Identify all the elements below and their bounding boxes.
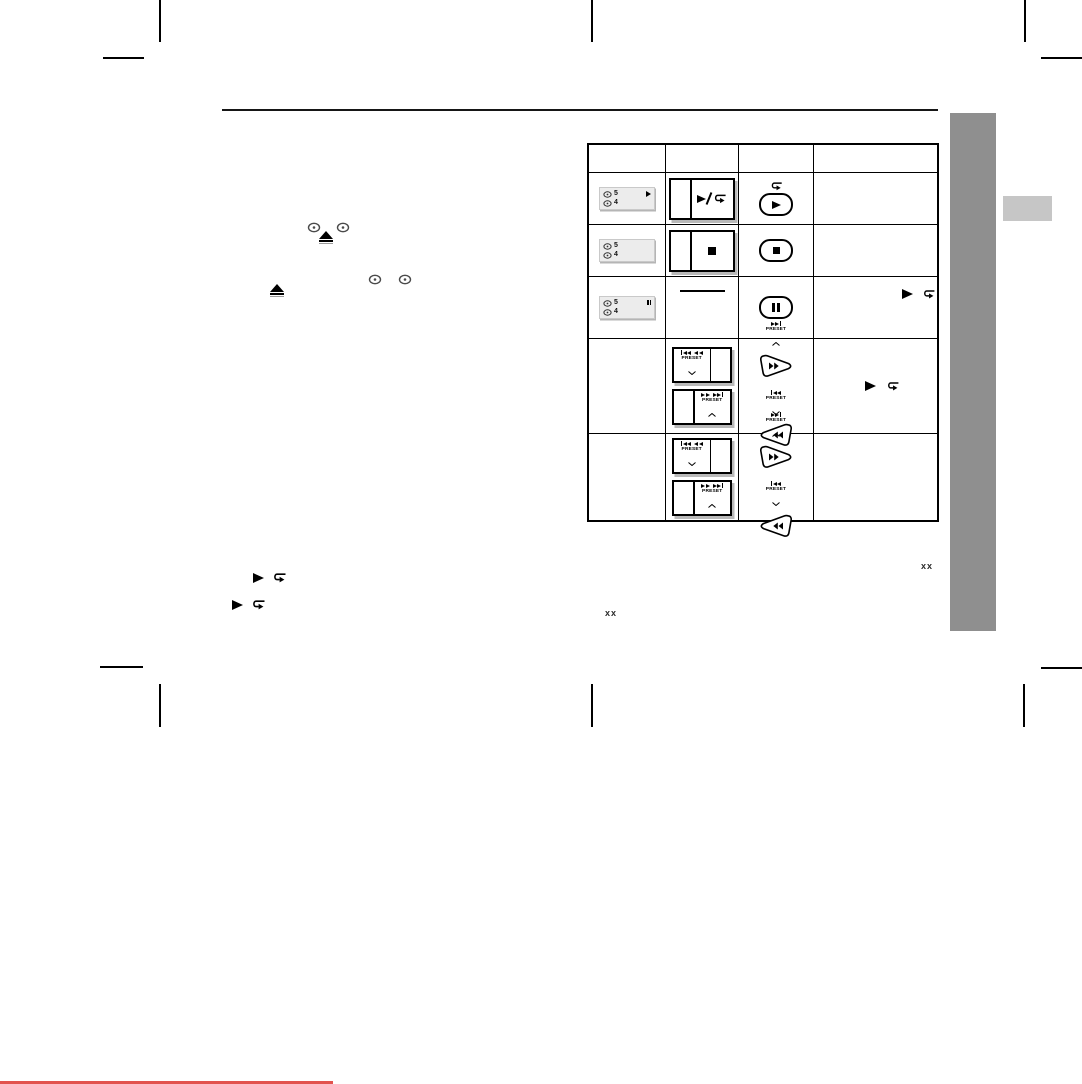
cell-note-stop xyxy=(814,225,937,277)
cell-remote-stop xyxy=(739,225,814,277)
cell-note-pause xyxy=(814,277,937,339)
crop-mark-bottom-right-horizontal xyxy=(1041,667,1082,669)
cell-remote-play xyxy=(739,173,814,225)
play-icon xyxy=(772,201,781,209)
repeat-icon xyxy=(712,193,727,204)
cell-remote-search: PRESET PRESET xyxy=(739,434,814,520)
chevron-down-icon xyxy=(772,493,780,511)
remote-pause-button xyxy=(759,296,793,319)
crop-mark-bottom-center-vertical xyxy=(591,684,593,727)
fast-forward-icon xyxy=(701,484,710,488)
crop-mark-top-center-vertical xyxy=(591,0,593,42)
cell-note-play xyxy=(814,173,937,225)
remote-rewind-pick-button xyxy=(758,513,794,545)
play-repeat-note xyxy=(865,381,900,391)
skip-forward-icon xyxy=(771,321,782,326)
no-button-dash xyxy=(680,290,725,292)
remote-fast-forward-pick-button xyxy=(758,444,794,476)
preset-up-label: PRESET xyxy=(766,412,786,442)
button-blank-half xyxy=(711,440,730,472)
skip-forward-icon xyxy=(771,412,782,417)
fast-forward-preset-up-glyphs: PRESET xyxy=(695,482,731,514)
repeat-icon xyxy=(250,599,266,610)
play-repeat-button xyxy=(669,178,735,220)
cell-unit-stop xyxy=(666,225,739,277)
play-icon xyxy=(646,191,651,197)
button-blank-half xyxy=(671,232,690,270)
button-blank-half xyxy=(674,482,693,514)
disc-icon xyxy=(603,303,612,321)
button-blank-half xyxy=(671,180,690,218)
disc-icon xyxy=(368,272,382,290)
chevron-down-icon xyxy=(688,362,696,380)
chevron-up-icon xyxy=(772,424,780,442)
lcd-line-disc4: 4 xyxy=(603,199,651,207)
crop-mark-bottom-left-horizontal xyxy=(100,666,143,668)
remote-play-group xyxy=(759,181,793,216)
play-icon xyxy=(902,289,913,299)
play-icon xyxy=(865,381,876,391)
crop-mark-bottom-right-vertical xyxy=(1023,684,1025,727)
table-header-notes xyxy=(814,145,937,173)
lcd-display-playing: 5 4 xyxy=(599,187,655,211)
table-header-display xyxy=(589,145,666,173)
repeat-icon xyxy=(769,181,783,191)
crop-mark-right-horizontal xyxy=(1041,57,1082,59)
skip-back-preset-down-button: PRESET xyxy=(672,438,732,474)
remote-search-buttons: PRESET PRESET xyxy=(758,409,794,545)
skip-back-preset-down-button: PRESET xyxy=(672,347,732,383)
chevron-up-icon xyxy=(708,495,716,513)
pause-icon xyxy=(647,300,651,305)
disc-icon xyxy=(603,194,612,212)
skip-back-preset-down-glyphs: PRESET xyxy=(674,440,710,472)
cell-display-play: 5 4 xyxy=(589,173,666,225)
stop-button xyxy=(669,230,735,272)
disc-icon xyxy=(336,220,350,238)
stop-glyph xyxy=(692,232,734,270)
chapter-sidebar-tab xyxy=(1003,196,1052,221)
cell-note-skip xyxy=(814,339,937,434)
fast-forward-preset-up-glyphs: PRESET xyxy=(695,391,731,423)
crop-mark-top-right-vertical xyxy=(1024,0,1026,42)
lcd-line-disc4: 4 xyxy=(603,308,651,316)
page-reference-bottom: xx xyxy=(605,608,617,618)
disc-icon xyxy=(603,246,612,264)
chapter-sidebar-bar xyxy=(950,113,996,631)
rewind-icon xyxy=(694,351,703,355)
skip-back-icon xyxy=(771,481,782,486)
play-icon xyxy=(697,195,706,203)
page-reference-right: xx xyxy=(921,561,933,571)
preset-down-label: PRESET xyxy=(766,481,786,511)
chevron-up-icon xyxy=(708,404,716,422)
skip-forward-icon xyxy=(713,392,724,397)
cell-display-skip xyxy=(589,339,666,434)
skip-back-preset-down-glyphs: PRESET xyxy=(674,349,710,381)
chevron-down-icon xyxy=(688,453,696,471)
remote-fast-forward-pick-button xyxy=(758,353,794,385)
preset-up-label: PRESET xyxy=(766,321,786,351)
play-icon xyxy=(232,600,243,610)
cell-unit-pause xyxy=(666,277,739,339)
skip-back-icon xyxy=(681,441,692,446)
crop-mark-bottom-left-vertical xyxy=(159,684,161,727)
crop-mark-top-left-vertical xyxy=(159,0,161,42)
eject-icon xyxy=(270,284,284,297)
skip-back-icon xyxy=(681,350,692,355)
cell-unit-search: PRESET xyxy=(666,434,739,520)
header-rule xyxy=(222,109,938,111)
cell-unit-play xyxy=(666,173,739,225)
remote-stop-button xyxy=(759,239,793,262)
cell-unit-skip: PRESET xyxy=(666,339,739,434)
lcd-line-disc4: 4 xyxy=(603,251,651,259)
stop-icon xyxy=(708,247,716,255)
lcd-display-paused: 5 4 xyxy=(599,296,655,320)
skip-forward-icon xyxy=(713,483,724,488)
rewind-icon xyxy=(694,442,703,446)
crop-mark-left-horizontal xyxy=(103,57,144,59)
play-repeat-note xyxy=(902,289,936,299)
repeat-icon xyxy=(271,572,287,583)
play-repeat-glyphs xyxy=(692,180,734,218)
manual-page: xx xx 5 xyxy=(0,0,1082,1084)
cell-display-pause: 5 4 xyxy=(589,277,666,339)
lcd-display-stopped: 5 4 xyxy=(599,239,655,263)
table-header-main-unit xyxy=(666,145,739,173)
button-blank-half xyxy=(674,391,693,423)
chevron-up-icon xyxy=(772,333,780,351)
play-icon xyxy=(253,573,264,583)
stop-icon xyxy=(773,247,780,254)
cell-display-stop: 5 4 xyxy=(589,225,666,277)
pause-icon xyxy=(772,303,780,312)
unit-search-buttons: PRESET xyxy=(672,438,732,516)
operation-table: 5 4 xyxy=(587,143,939,522)
repeat-icon xyxy=(921,289,936,299)
repeat-icon xyxy=(885,381,900,391)
table-header-remote xyxy=(739,145,814,173)
disc-icon xyxy=(398,272,412,290)
remote-play-button xyxy=(759,193,793,216)
eject-icon xyxy=(319,231,333,244)
fast-forward-preset-up-button: PRESET xyxy=(672,480,732,516)
cell-note-search xyxy=(814,434,937,520)
fast-forward-preset-up-button: PRESET xyxy=(672,389,732,425)
skip-back-icon xyxy=(771,390,782,395)
fast-forward-icon xyxy=(701,393,710,397)
button-blank-half xyxy=(711,349,730,381)
unit-skip-buttons: PRESET xyxy=(672,347,732,425)
cell-display-search xyxy=(589,434,666,520)
